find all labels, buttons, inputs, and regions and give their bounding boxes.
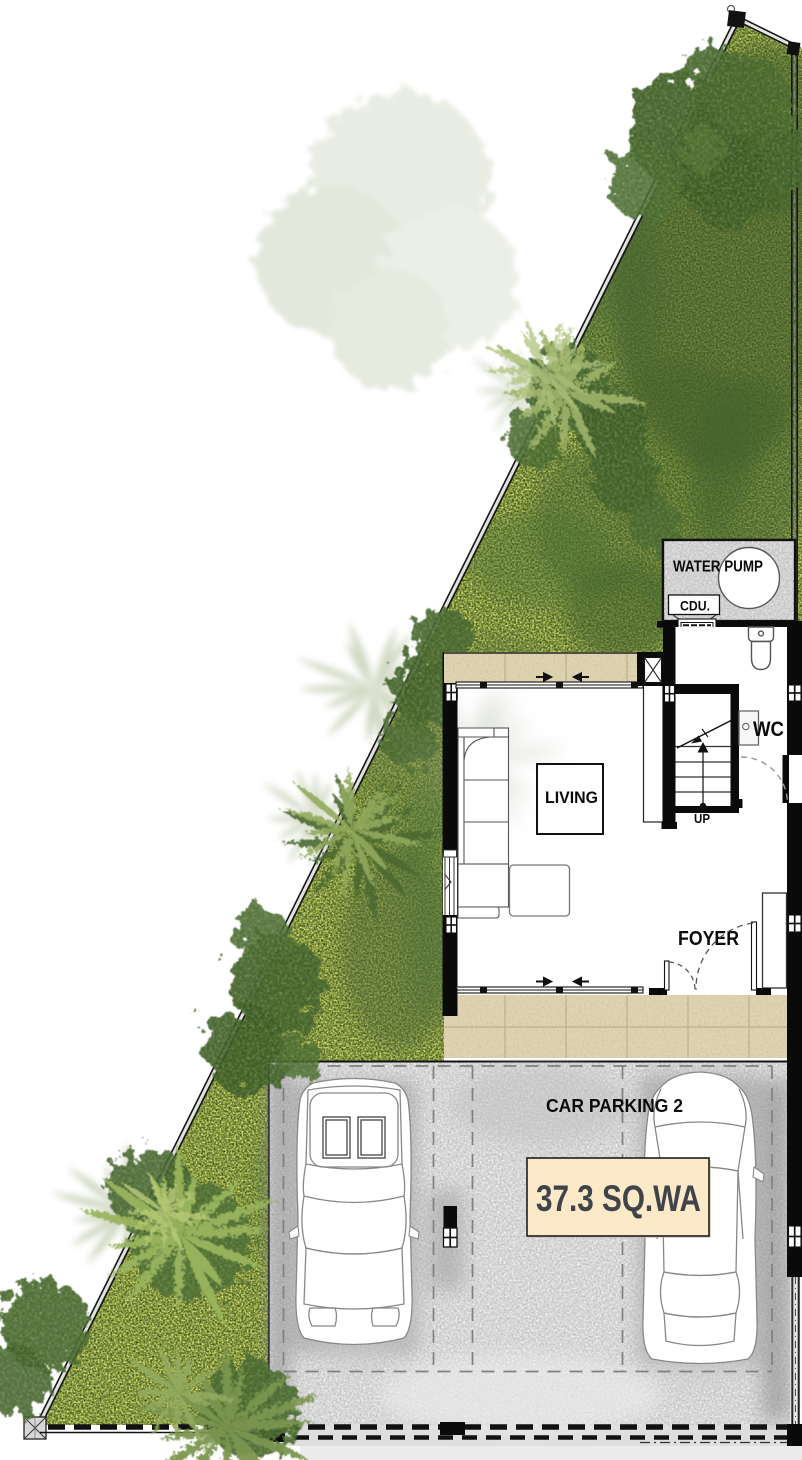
svg-text:37.3 SQ.WA: 37.3 SQ.WA xyxy=(536,1178,701,1219)
svg-text:CAR PARKING 2: CAR PARKING 2 xyxy=(546,1096,683,1116)
svg-text:CDU.: CDU. xyxy=(680,599,710,614)
svg-text:WATER PUMP: WATER PUMP xyxy=(673,559,763,576)
svg-text:WC: WC xyxy=(753,718,784,741)
svg-text:LIVING: LIVING xyxy=(545,789,598,807)
svg-text:UP: UP xyxy=(694,811,710,826)
svg-text:FOYER: FOYER xyxy=(678,928,739,950)
